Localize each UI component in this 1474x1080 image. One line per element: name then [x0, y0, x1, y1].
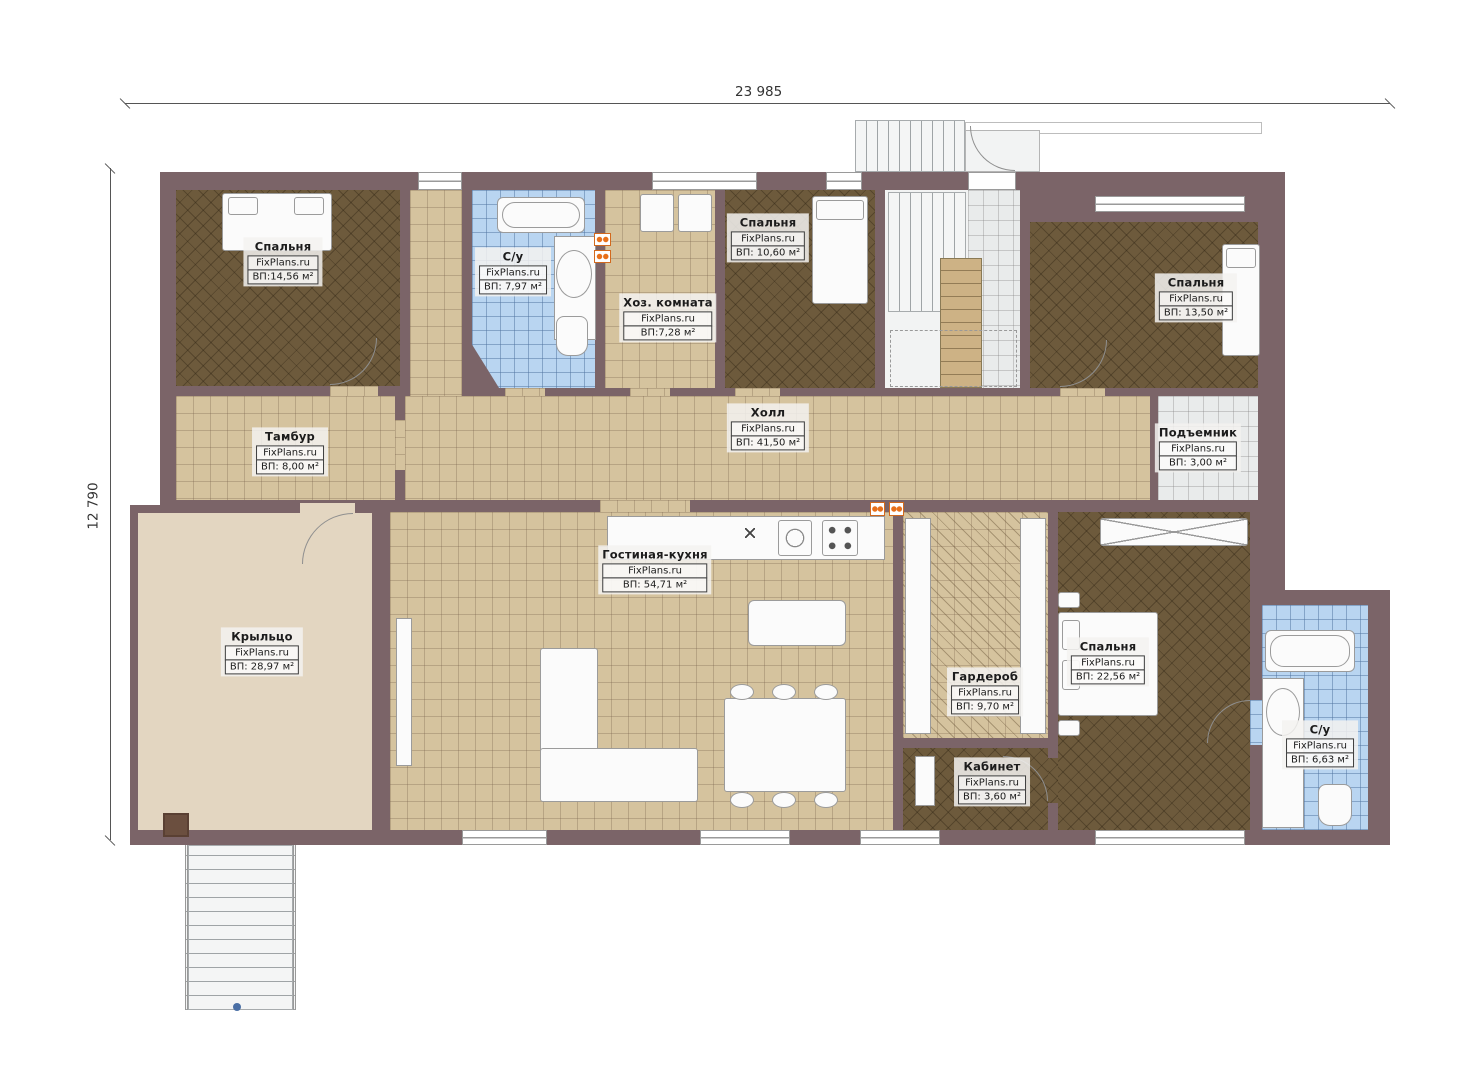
room-area: ВП: 8,00 м²: [256, 460, 324, 475]
room-label-wardrobe: Гардероб FixPlans.ru ВП: 9,70 м²: [947, 667, 1023, 716]
top-dimension-line: [125, 103, 1390, 104]
room-watermark: FixPlans.ru: [247, 256, 318, 271]
room-watermark: FixPlans.ru: [1159, 292, 1233, 307]
utility-door-gap: [630, 388, 670, 396]
room-area: ВП:14,56 м²: [247, 270, 318, 285]
room-watermark: FixPlans.ru: [731, 422, 805, 437]
room-area: ВП: 54,71 м²: [602, 578, 707, 593]
nightstand: [1058, 592, 1080, 608]
room-area: ВП: 41,50 м²: [731, 436, 805, 451]
room-watermark: FixPlans.ru: [602, 564, 707, 579]
window: [1095, 830, 1245, 845]
window: [826, 172, 862, 190]
width-dimension-label: 23 985: [735, 84, 782, 100]
room-name: Подъемник: [1159, 426, 1237, 439]
room-name: Гостиная-кухня: [602, 548, 707, 561]
exterior-stair-top: [855, 120, 965, 172]
office-desk: [915, 756, 935, 806]
toilet: [1318, 784, 1352, 826]
top-exterior-door-gap: [968, 172, 1016, 190]
stair-dashed-outline: [890, 330, 1017, 387]
window: [700, 830, 790, 845]
sofa: [540, 748, 698, 802]
bathtub: [497, 197, 585, 233]
window: [652, 172, 757, 190]
window: [462, 830, 547, 845]
bathtub: [1265, 630, 1355, 672]
chair: [730, 792, 754, 808]
chair: [814, 792, 838, 808]
room-label-bedroom2: Спальня FixPlans.ru ВП: 10,60 м²: [727, 213, 809, 262]
kitchen-island: [748, 600, 846, 646]
chair: [730, 684, 754, 700]
pillow: [228, 197, 258, 215]
tambur-hall-door-gap: [395, 420, 405, 470]
room-name: Тамбур: [256, 430, 324, 443]
bathtub-inner: [502, 202, 580, 228]
entry-door-gap: [300, 503, 355, 513]
pillow: [816, 200, 864, 220]
room-watermark: FixPlans.ru: [623, 312, 712, 327]
room-label-bedroom3: Спальня FixPlans.ru ВП: 13,50 м²: [1155, 273, 1237, 322]
room-area: ВП: 13,50 м²: [1159, 306, 1233, 321]
room-name: Хоз. комната: [623, 296, 712, 309]
room-watermark: FixPlans.ru: [731, 232, 805, 247]
bedroom2-door-gap: [735, 388, 780, 396]
washer: [640, 194, 674, 232]
room-label-bathroom2: С/у FixPlans.ru ВП: 6,63 м²: [1282, 720, 1358, 769]
room-area: ВП: 28,97 м²: [225, 660, 299, 675]
room-name: Холл: [731, 406, 805, 419]
room-watermark: FixPlans.ru: [479, 266, 547, 281]
room-watermark: FixPlans.ru: [958, 776, 1026, 791]
chair: [772, 792, 796, 808]
stove: [822, 520, 858, 556]
room-area: ВП: 9,70 м²: [951, 700, 1019, 715]
room-label-bedroom4: Спальня FixPlans.ru ВП: 22,56 м²: [1067, 637, 1149, 686]
room-label-hall: Холл FixPlans.ru ВП: 41,50 м²: [727, 403, 809, 452]
radiator-icon: [594, 233, 611, 246]
room-watermark: FixPlans.ru: [951, 686, 1019, 701]
window: [1095, 196, 1245, 212]
bathtub-inner: [1270, 635, 1350, 667]
corridor-floor: [410, 190, 462, 406]
room-name: Спальня: [731, 216, 805, 229]
toilet: [556, 316, 588, 356]
left-dimension-line: [110, 168, 111, 840]
room-watermark: FixPlans.ru: [1071, 656, 1145, 671]
room-area: ВП: 10,60 м²: [731, 246, 805, 261]
window: [860, 830, 940, 845]
room-label-porch: Крыльцо FixPlans.ru ВП: 28,97 м²: [221, 627, 303, 676]
room-label-bedroom1: Спальня FixPlans.ru ВП:14,56 м²: [243, 237, 322, 286]
room-area: ВП: 3,00 м²: [1159, 456, 1237, 471]
nightstand: [1058, 720, 1080, 736]
room-name: Гардероб: [951, 670, 1019, 683]
room-label-bathroom1: С/у FixPlans.ru ВП: 7,97 м²: [475, 247, 551, 296]
bedroom3-door-gap: [1060, 388, 1105, 396]
room-label-elevator: Подъемник FixPlans.ru ВП: 3,00 м²: [1155, 423, 1241, 472]
utility-cabinet: [678, 194, 712, 232]
tv-unit: [396, 618, 412, 766]
room-name: Крыльцо: [225, 630, 299, 643]
porch-stair: [185, 845, 296, 1010]
floor-plan: 23 985 12 790: [0, 0, 1474, 1080]
pillow: [294, 197, 324, 215]
room-label-tambur: Тамбур FixPlans.ru ВП: 8,00 м²: [252, 427, 328, 476]
chair: [772, 684, 796, 700]
kitchen-sink: [778, 520, 812, 556]
room-watermark: FixPlans.ru: [1159, 442, 1237, 457]
bathroom2-door-gap: [1250, 700, 1262, 745]
room-area: ВП: 3,60 м²: [958, 790, 1026, 805]
room-name: Кабинет: [958, 760, 1026, 773]
height-dimension-label: 12 790: [86, 482, 102, 529]
room-label-office: Кабинет FixPlans.ru ВП: 3,60 м²: [954, 757, 1030, 806]
bathroom1-door-gap: [505, 388, 545, 396]
room-watermark: FixPlans.ru: [1286, 739, 1354, 754]
porch-planter: [163, 813, 189, 837]
dining-table: [724, 698, 846, 792]
room-watermark: FixPlans.ru: [256, 446, 324, 461]
closet: [1100, 518, 1248, 546]
room-area: ВП: 7,97 м²: [479, 280, 547, 295]
hall-living-opening: [600, 500, 690, 512]
room-area: ВП:7,28 м²: [623, 326, 712, 341]
wardrobe-unit: [1020, 518, 1046, 734]
window: [418, 172, 462, 190]
room-label-living-kitchen: Гостиная-кухня FixPlans.ru ВП: 54,71 м²: [598, 545, 711, 594]
office-door-gap: [1048, 758, 1058, 803]
room-watermark: FixPlans.ru: [225, 646, 299, 661]
pillow: [1226, 248, 1256, 268]
sink: [556, 250, 592, 298]
room-name: Спальня: [247, 240, 318, 253]
radiator-icon: [594, 250, 611, 263]
radiator-icon: [870, 502, 885, 516]
room-name: Спальня: [1159, 276, 1233, 289]
room-name: С/у: [479, 250, 547, 263]
stair-marker-dot: [233, 1003, 241, 1011]
bedroom1-door-gap: [330, 386, 378, 396]
wardrobe-unit: [905, 518, 931, 734]
x-marker: [745, 528, 755, 538]
room-name: С/у: [1286, 723, 1354, 736]
radiator-icon: [889, 502, 904, 516]
room-label-utility: Хоз. комната FixPlans.ru ВП:7,28 м²: [619, 293, 716, 342]
room-area: ВП: 22,56 м²: [1071, 670, 1145, 685]
room-name: Спальня: [1071, 640, 1145, 653]
chair: [814, 684, 838, 700]
room-area: ВП: 6,63 м²: [1286, 753, 1354, 768]
